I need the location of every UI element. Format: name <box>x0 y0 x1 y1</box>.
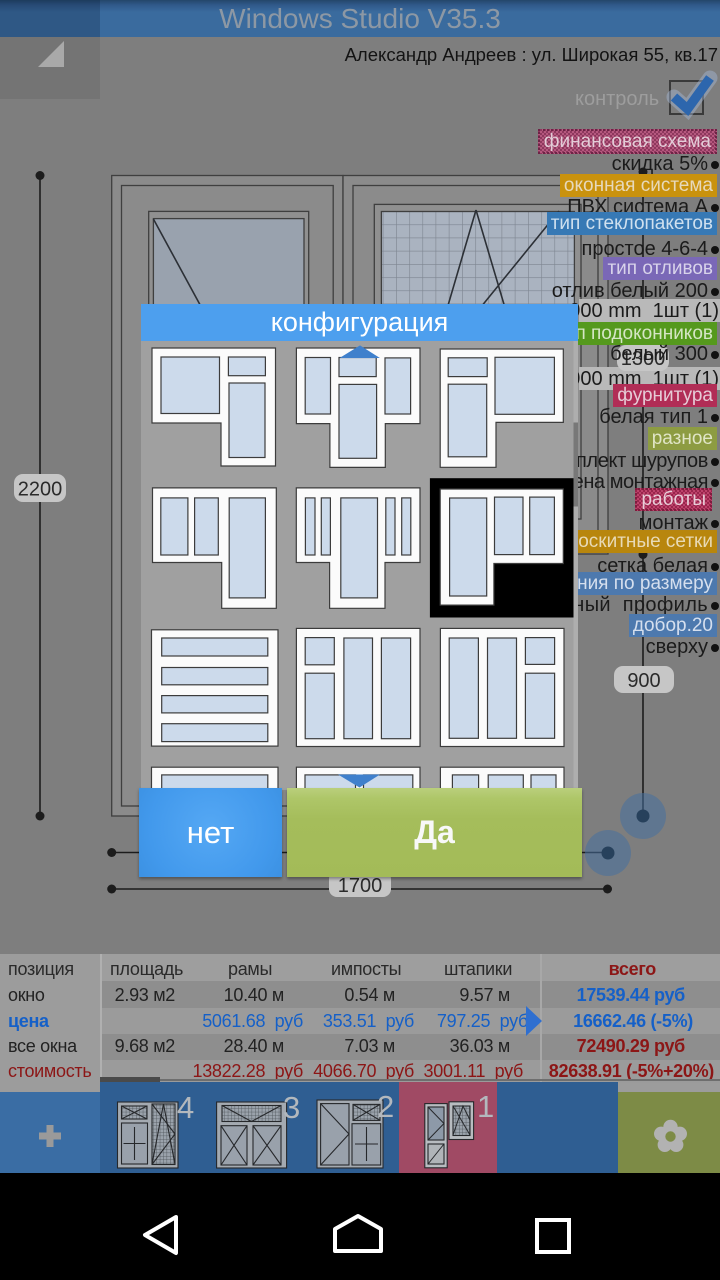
svg-text:2: 2 <box>377 1089 394 1124</box>
svg-text:1700: 1700 <box>338 875 383 897</box>
svg-text:900: 900 <box>627 670 660 692</box>
svg-text:4: 4 <box>177 1090 194 1125</box>
svg-text:2200: 2200 <box>18 479 63 501</box>
svg-text:1: 1 <box>477 1089 494 1124</box>
svg-text:3: 3 <box>283 1090 300 1125</box>
